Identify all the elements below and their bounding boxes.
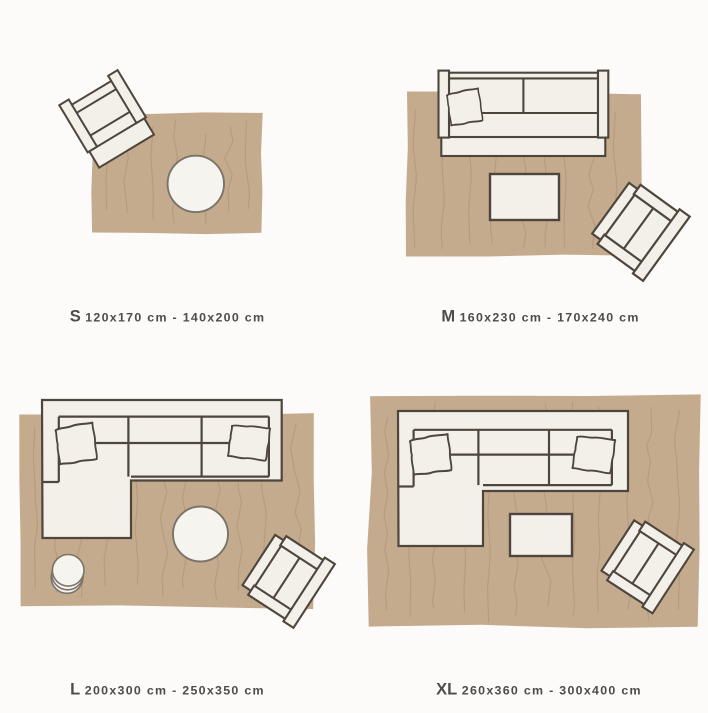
svg-text:XL260x360 cm - 300x400 cm: XL260x360 cm - 300x400 cm — [436, 681, 642, 699]
svg-text:L200x300 cm - 250x350 cm: L200x300 cm - 250x350 cm — [70, 681, 265, 699]
svg-text:M160x230 cm - 170x240 cm: M160x230 cm - 170x240 cm — [441, 308, 639, 326]
svg-text:S120x170 cm - 140x200 cm: S120x170 cm - 140x200 cm — [70, 308, 266, 326]
